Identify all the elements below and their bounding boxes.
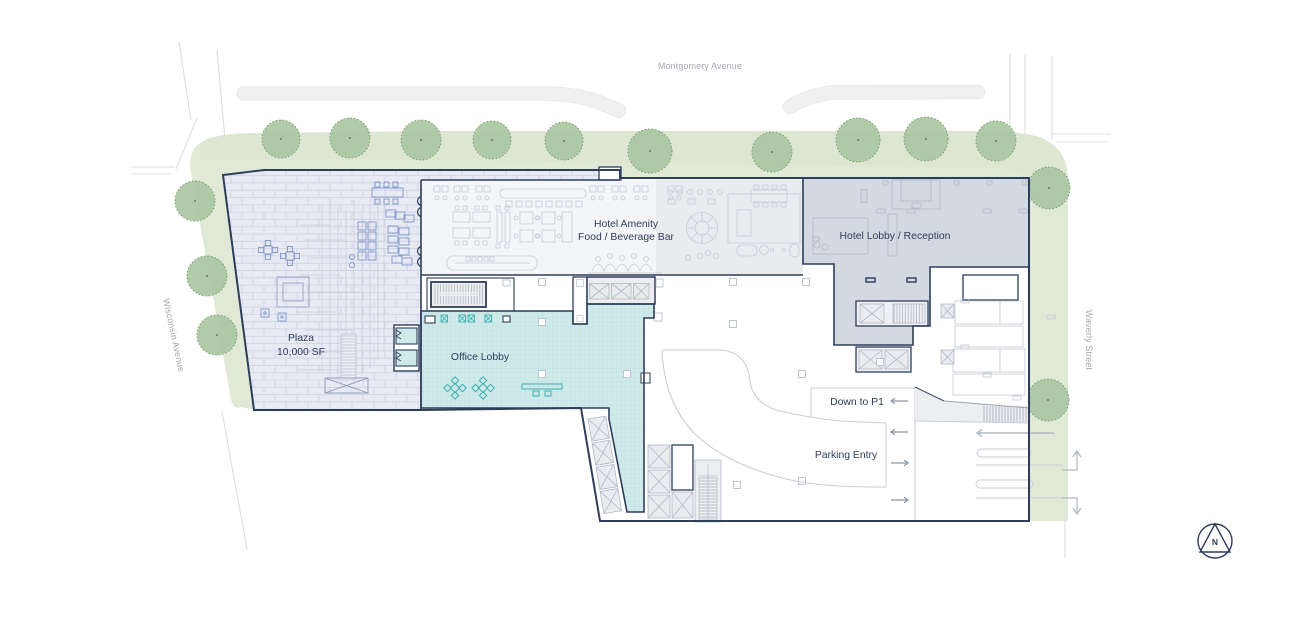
- svg-text:Wisconsin Avenue: Wisconsin Avenue: [161, 298, 186, 373]
- svg-text:Hotel Lobby / Reception: Hotel Lobby / Reception: [840, 231, 951, 242]
- svg-text:Parking Entry: Parking Entry: [815, 450, 878, 461]
- svg-text:Waverly Street: Waverly Street: [1084, 310, 1094, 371]
- svg-text:Plaza: Plaza: [288, 333, 314, 344]
- svg-text:Hotel Amenity: Hotel Amenity: [594, 219, 659, 230]
- svg-text:10,000 SF: 10,000 SF: [277, 347, 325, 358]
- svg-text:Office Lobby: Office Lobby: [451, 352, 510, 363]
- svg-text:Down to P1: Down to P1: [830, 397, 884, 408]
- svg-text:Montgomery Avenue: Montgomery Avenue: [658, 61, 742, 71]
- svg-text:N: N: [1212, 537, 1218, 547]
- svg-text:Food / Beverage Bar: Food / Beverage Bar: [578, 232, 674, 243]
